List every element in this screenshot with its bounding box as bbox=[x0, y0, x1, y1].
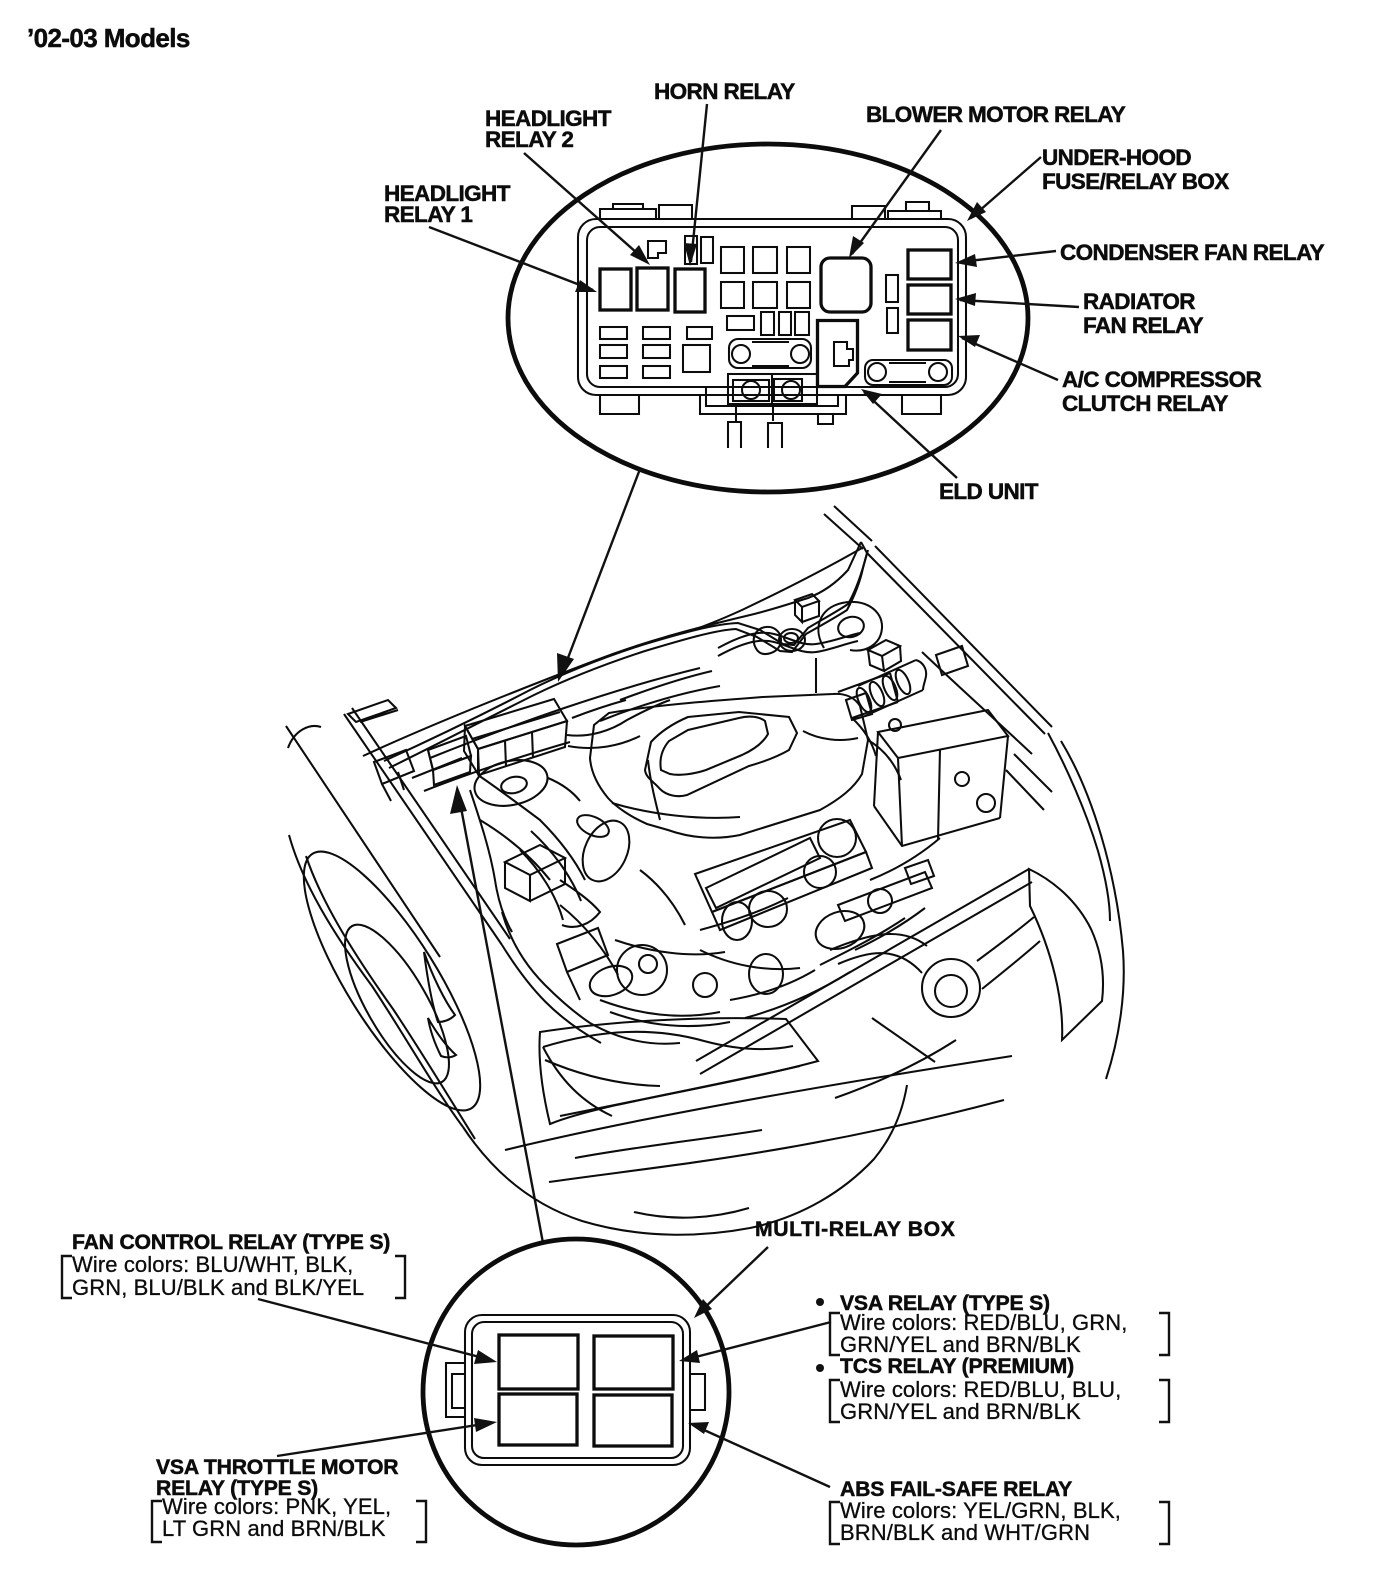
svg-text:FAN RELAY: FAN RELAY bbox=[1083, 313, 1204, 338]
svg-text:GRN/YEL and BRN/BLK: GRN/YEL and BRN/BLK bbox=[840, 1332, 1081, 1357]
svg-text:HORN RELAY: HORN RELAY bbox=[654, 79, 795, 104]
svg-text:GRN/YEL and BRN/BLK: GRN/YEL and BRN/BLK bbox=[840, 1399, 1081, 1424]
svg-text:UNDER-HOOD: UNDER-HOOD bbox=[1042, 145, 1191, 170]
svg-text:FUSE/RELAY BOX: FUSE/RELAY BOX bbox=[1042, 169, 1229, 194]
svg-text:GRN, BLU/BLK and BLK/YEL: GRN, BLU/BLK and BLK/YEL bbox=[72, 1275, 364, 1300]
svg-text:CLUTCH RELAY: CLUTCH RELAY bbox=[1062, 391, 1228, 416]
svg-text:LT GRN and BRN/BLK: LT GRN and BRN/BLK bbox=[162, 1516, 386, 1541]
svg-text:RADIATOR: RADIATOR bbox=[1083, 289, 1195, 314]
svg-text:Wire colors: BLU/WHT, BLK,: Wire colors: BLU/WHT, BLK, bbox=[72, 1252, 353, 1277]
svg-text:TCS RELAY (PREMIUM): TCS RELAY (PREMIUM) bbox=[840, 1355, 1074, 1378]
svg-text:FAN CONTROL RELAY (TYPE S): FAN CONTROL RELAY (TYPE S) bbox=[72, 1231, 390, 1254]
svg-text:MULTI-RELAY BOX: MULTI-RELAY BOX bbox=[755, 1218, 955, 1241]
svg-text:BLOWER MOTOR RELAY: BLOWER MOTOR RELAY bbox=[866, 102, 1126, 127]
svg-text:RELAY 1: RELAY 1 bbox=[384, 202, 472, 227]
svg-text:A/C COMPRESSOR: A/C COMPRESSOR bbox=[1062, 367, 1261, 392]
svg-text:CONDENSER FAN RELAY: CONDENSER FAN RELAY bbox=[1060, 240, 1325, 265]
svg-text:RELAY 2: RELAY 2 bbox=[485, 127, 573, 152]
svg-text:VSA THROTTLE MOTOR: VSA THROTTLE MOTOR bbox=[156, 1456, 398, 1479]
svg-text:’02-03 Models: ’02-03 Models bbox=[27, 23, 190, 53]
svg-text:BRN/BLK and WHT/GRN: BRN/BLK and WHT/GRN bbox=[840, 1520, 1090, 1545]
svg-text:ELD UNIT: ELD UNIT bbox=[939, 479, 1039, 504]
